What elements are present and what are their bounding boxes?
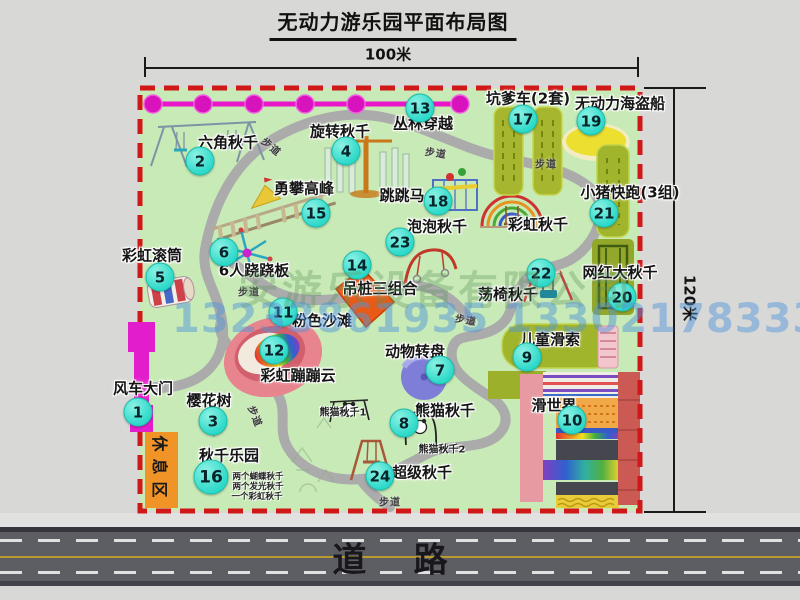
facility-badge-10: 10 (558, 406, 587, 435)
facility-badge-18: 18 (424, 187, 453, 216)
facility-label-5: 彩虹滚筒 (122, 245, 182, 266)
rest-area-label: 休息区 (149, 435, 173, 504)
facility-label-21: 小猪快跑(3组) (580, 182, 679, 203)
walkway-label: 步道 (259, 133, 285, 159)
facility-badge-6: 6 (210, 238, 239, 267)
facility-badge-23: 23 (386, 228, 415, 257)
facility-label-8: 熊猫秋千 (415, 400, 475, 421)
facility-badge-15: 15 (302, 199, 331, 228)
facility-label-1: 风车大门 (113, 378, 173, 399)
facility-badge-24: 24 (366, 462, 395, 491)
facility-badge-7: 7 (426, 356, 455, 385)
facility-sublabel: 一个彩虹秋千 (231, 490, 282, 502)
walkway-label: 步道 (424, 143, 448, 161)
facility-badge-19: 19 (577, 107, 606, 136)
facility-badge-3: 3 (199, 407, 228, 436)
facility-sublabel: 熊猫秋千2 (419, 441, 466, 456)
walkway-label: 步道 (379, 494, 401, 509)
watermark-phone: 13233861935 13302178333 (172, 296, 800, 342)
screenshot-root: 无动力游乐园平面布局图 100米 120米 (0, 0, 800, 600)
facility-badge-4: 4 (332, 137, 361, 166)
facility-badge-1: 1 (124, 398, 153, 427)
facility-label-24: 超级秋千 (392, 462, 452, 483)
facility-label-23: 泡泡秋千 (407, 216, 467, 237)
facility-badge-5: 5 (146, 263, 175, 292)
facility-badge-9: 9 (513, 343, 542, 372)
facility-badge-2: 2 (186, 147, 215, 176)
facility-badge-8: 8 (390, 409, 419, 438)
facility-label-18: 跳跳马 (379, 185, 424, 206)
facility-badge-16: 16 (194, 460, 229, 495)
walkway-label: 步道 (245, 403, 267, 429)
facility-sublabel: 熊猫秋千1 (320, 404, 367, 419)
facility-label-彩虹秋千: 彩虹秋千 (508, 214, 568, 235)
facility-badge-13: 13 (406, 94, 435, 123)
walkway-label: 步道 (535, 156, 557, 171)
facility-label-15: 勇攀高峰 (274, 178, 334, 199)
facility-badge-17: 17 (509, 105, 538, 134)
facility-badge-21: 21 (590, 199, 619, 228)
facility-label-12: 彩虹蹦蹦云 (260, 365, 335, 386)
